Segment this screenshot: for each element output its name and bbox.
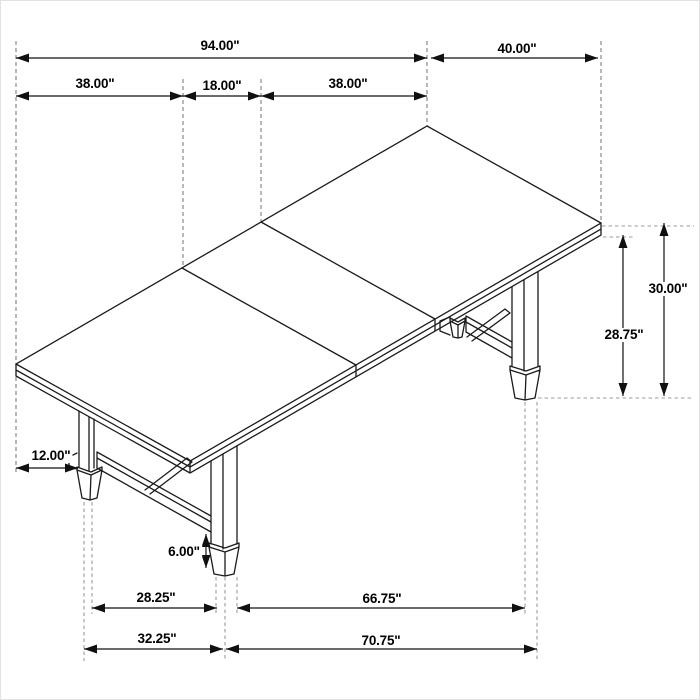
dim-label-end-overhang: 12.00" xyxy=(30,449,73,463)
tabletop-surface xyxy=(16,126,601,461)
dimension-lines xyxy=(16,54,669,654)
table-drawing xyxy=(16,126,601,576)
tabletop-edge xyxy=(16,223,601,473)
leg-front-left xyxy=(211,446,237,549)
dim-label-feet-outer-right: 70.75" xyxy=(360,634,403,648)
dim-label-height-to-underside: 28.75" xyxy=(603,328,646,342)
foot-rear-left xyxy=(77,467,102,500)
diagram-canvas: 94.00" 40.00" 38.00" 18.00" 38.00" 30.00… xyxy=(0,0,700,700)
dim-label-height-total: 30.00" xyxy=(647,282,690,296)
dim-label-width-total: 40.00" xyxy=(496,42,539,56)
dim-label-feet-outer-left: 32.25" xyxy=(136,632,179,646)
dim-label-segment-left: 38.00" xyxy=(74,77,117,91)
dim-label-length-total: 94.00" xyxy=(199,39,242,53)
dim-label-feet-inner-right: 66.75" xyxy=(361,592,404,606)
dim-label-foot-height: 6.00" xyxy=(166,545,202,559)
extension-lines xyxy=(16,41,601,473)
leg-rear-left xyxy=(79,411,94,471)
beam-right xyxy=(466,316,512,358)
foot-front-right xyxy=(510,366,540,400)
dim-label-feet-inner-left: 28.25" xyxy=(135,591,178,605)
dim-label-segment-center: 18.00" xyxy=(201,79,244,93)
table-line-drawing xyxy=(1,1,700,700)
dim-label-segment-right: 38.00" xyxy=(327,77,370,91)
foot-front-left xyxy=(209,543,239,576)
leg-front-right xyxy=(512,272,538,371)
